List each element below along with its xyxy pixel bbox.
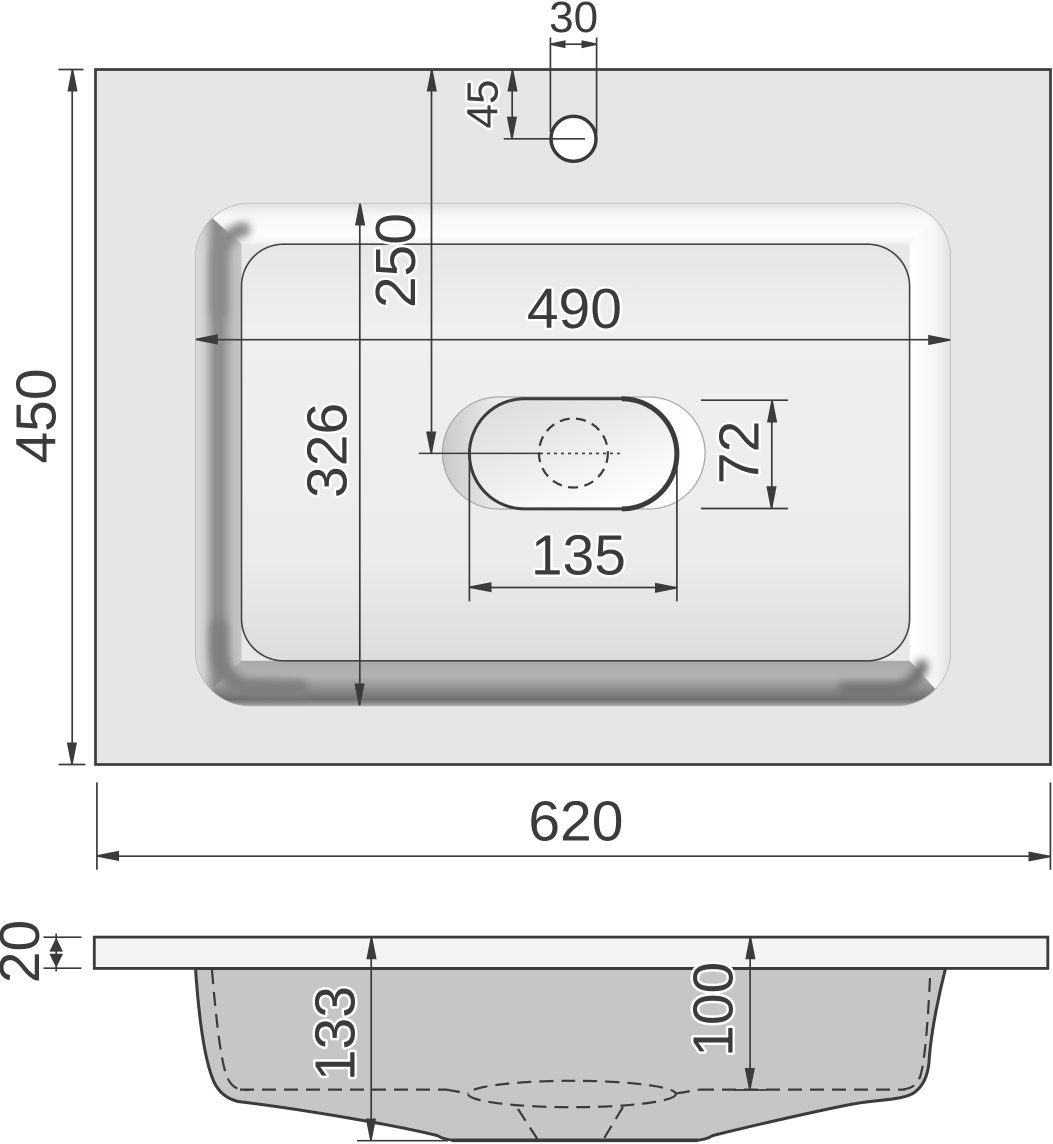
svg-text:100: 100 [682,962,746,1057]
svg-text:133: 133 [304,986,368,1081]
svg-text:30: 30 [549,0,598,42]
svg-text:135: 135 [531,524,626,588]
svg-text:620: 620 [528,789,623,853]
svg-text:20: 20 [0,920,52,983]
svg-text:72: 72 [708,421,772,484]
svg-text:45: 45 [459,80,508,129]
svg-text:490: 490 [527,277,622,341]
svg-text:250: 250 [364,213,428,308]
svg-text:326: 326 [295,403,359,498]
svg-text:450: 450 [4,368,68,463]
